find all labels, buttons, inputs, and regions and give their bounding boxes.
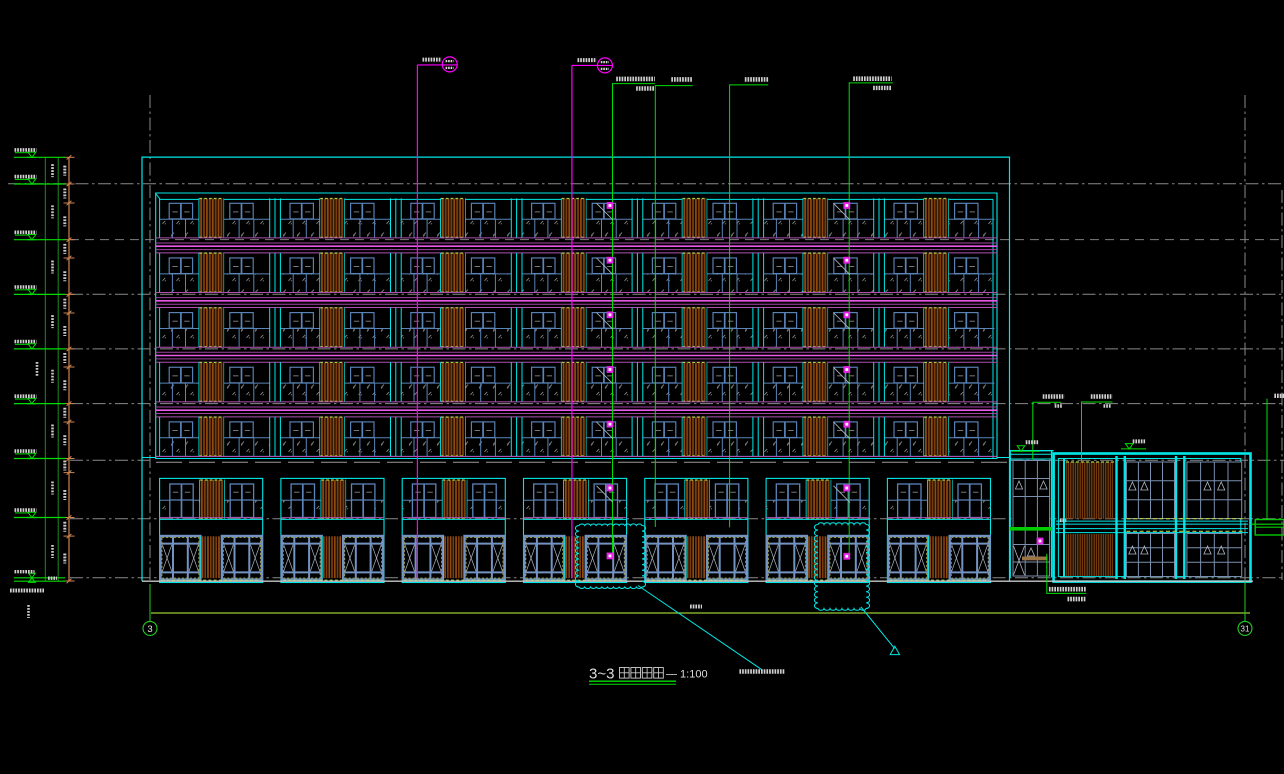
svg-text:31: 31	[1241, 625, 1250, 634]
svg-text:3: 3	[147, 624, 152, 635]
svg-text:3~3: 3~3	[589, 665, 614, 682]
svg-text:— 1:100: — 1:100	[666, 669, 708, 681]
